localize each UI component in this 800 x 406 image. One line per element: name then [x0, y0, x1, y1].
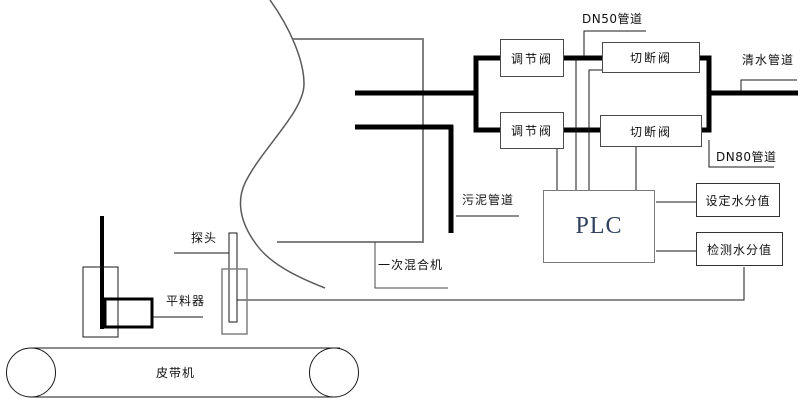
cutoff-valve-bottom-box: 切断阀 [600, 115, 702, 147]
regulating-valve-bottom-box: 调节阀 [500, 112, 564, 149]
probe-label: 探头 [191, 229, 217, 246]
leveler-body [105, 299, 152, 327]
set-moisture-label: 设定水分值 [705, 192, 770, 209]
mixer-outline [277, 39, 423, 242]
belt-roller-left [7, 348, 56, 397]
belt-roller-right [310, 348, 359, 397]
cutoff-valve-bottom-label: 切断阀 [630, 123, 672, 140]
plc-label: PLC [575, 213, 622, 240]
leveler-label: 平料器 [166, 292, 205, 309]
cutoff-valve-top-label: 切断阀 [630, 49, 672, 66]
process-diagram: 调节阀 切断阀 调节阀 切断阀 PLC 设定水分值 检测水分值 DN50管道 清… [0, 0, 800, 406]
detect-moisture-label: 检测水分值 [707, 241, 772, 258]
probe-rod [229, 233, 237, 322]
dn80-pipe-label: DN80管道 [716, 148, 777, 165]
clean-water-pipe-label: 清水管道 [742, 51, 794, 68]
clean-water-label-leader [741, 80, 797, 91]
detect-moisture-box: 检测水分值 [696, 232, 783, 266]
set-moisture-box: 设定水分值 [696, 183, 780, 217]
regulating-valve-top-label: 调节阀 [511, 50, 553, 67]
primary-mixer-label: 一次混合机 [378, 256, 443, 273]
belt-conveyor-label: 皮带机 [156, 364, 195, 381]
regulating-valve-bottom-label: 调节阀 [511, 122, 553, 139]
probe-holder [222, 269, 247, 334]
dn50-pipe-label: DN50管道 [582, 10, 643, 27]
sludge-pipe-label: 污泥管道 [462, 191, 514, 208]
boundary-curve [240, 0, 325, 288]
plc-box: PLC [543, 190, 655, 263]
cutoff-valve-top-box: 切断阀 [602, 42, 700, 73]
regulating-valve-top-box: 调节阀 [500, 39, 564, 77]
